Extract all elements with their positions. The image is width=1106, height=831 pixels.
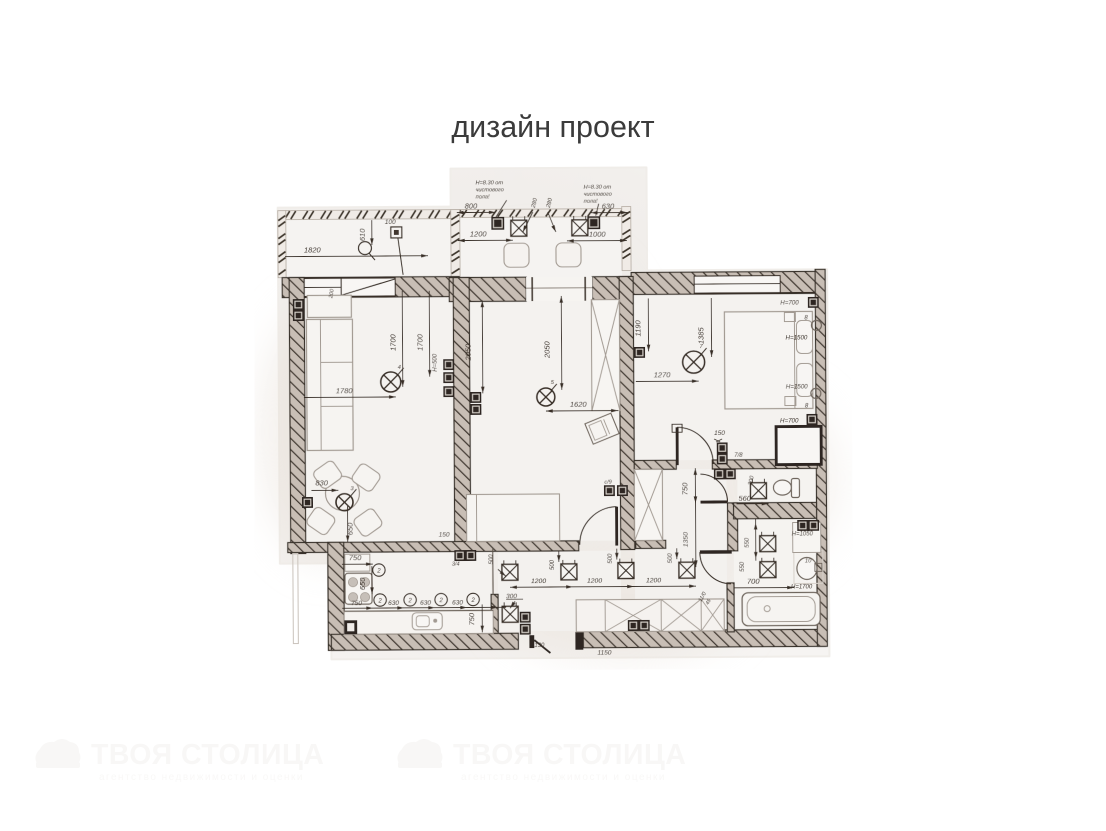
svg-text:2: 2	[438, 598, 443, 604]
svg-text:чистового: чистового	[584, 192, 612, 198]
svg-text:H=1050: H=1050	[792, 531, 814, 537]
svg-text:2050: 2050	[464, 343, 473, 362]
svg-text:550: 550	[745, 537, 751, 548]
svg-text:H=1700: H=1700	[791, 584, 813, 590]
svg-text:550: 550	[740, 561, 746, 572]
svg-text:4: 4	[398, 365, 401, 371]
svg-text:H=700: H=700	[780, 299, 799, 306]
svg-text:H=8.30 от: H=8.30 от	[476, 180, 504, 186]
svg-text:500: 500	[608, 553, 614, 564]
svg-text:630: 630	[420, 600, 431, 607]
svg-text:750: 750	[680, 482, 689, 495]
svg-text:1270: 1270	[654, 370, 672, 379]
svg-text:830: 830	[315, 478, 328, 487]
svg-text:750: 750	[349, 553, 362, 562]
svg-text:ТВОЯ СТОЛИЦА: ТВОЯ СТОЛИЦА	[453, 739, 686, 771]
svg-text:1820: 1820	[304, 245, 322, 254]
svg-text:100: 100	[385, 219, 396, 226]
svg-text:630: 630	[602, 202, 615, 211]
svg-text:700: 700	[747, 577, 760, 586]
svg-text:пола!: пола!	[476, 194, 490, 200]
svg-text:500: 500	[489, 554, 495, 565]
svg-text:150: 150	[714, 430, 725, 437]
svg-text:130: 130	[534, 643, 545, 649]
svg-text:1385: 1385	[696, 327, 705, 345]
svg-text:2: 2	[470, 598, 475, 604]
svg-text:800: 800	[465, 201, 478, 210]
svg-text:500: 500	[550, 559, 556, 570]
svg-text:H=8.30 от: H=8.30 от	[584, 185, 612, 191]
svg-text:1200: 1200	[646, 577, 661, 584]
svg-text:650: 650	[358, 577, 367, 590]
svg-text:560: 560	[738, 494, 751, 503]
svg-text:ТВОЯ СТОЛИЦА: ТВОЯ СТОЛИЦА	[91, 739, 324, 771]
svg-text:150: 150	[439, 532, 450, 539]
svg-text:агентство недвижимости и оц: агентство недвижимости и оценки	[99, 772, 304, 783]
svg-text:1700: 1700	[388, 333, 397, 351]
svg-text:610: 610	[358, 228, 367, 241]
svg-text:1000: 1000	[589, 230, 607, 239]
svg-text:1190: 1190	[633, 319, 642, 336]
svg-text:630: 630	[388, 600, 399, 607]
svg-text:чистового: чистового	[476, 187, 504, 193]
svg-text:H=500: H=500	[433, 353, 439, 372]
svg-text:1700: 1700	[415, 333, 424, 351]
svg-text:2050: 2050	[543, 340, 552, 359]
svg-text:1620: 1620	[570, 400, 588, 409]
svg-text:с/9: с/9	[604, 480, 611, 486]
svg-text:750: 750	[467, 612, 476, 625]
svg-text:2: 2	[377, 599, 382, 605]
svg-text:1150: 1150	[597, 650, 611, 657]
svg-text:агентство недвижимости и оц: агентство недвижимости и оценки	[461, 772, 666, 783]
svg-text:1350: 1350	[683, 532, 690, 547]
svg-text:H=700: H=700	[780, 417, 799, 424]
svg-text:10: 10	[805, 558, 812, 564]
svg-text:H=1500: H=1500	[785, 334, 807, 341]
svg-text:дизайн проект: дизайн проект	[451, 110, 654, 144]
svg-text:630: 630	[452, 600, 463, 607]
svg-text:H=1500: H=1500	[786, 383, 808, 390]
svg-text:3/4: 3/4	[452, 562, 460, 568]
svg-text:7/8: 7/8	[734, 453, 743, 459]
svg-text:1780: 1780	[336, 386, 354, 395]
svg-text:2: 2	[407, 598, 412, 604]
svg-text:1200: 1200	[587, 578, 602, 585]
svg-text:650: 650	[346, 522, 355, 535]
svg-text:2: 2	[376, 569, 381, 575]
svg-text:750: 750	[351, 600, 362, 607]
svg-text:500: 500	[668, 553, 674, 564]
svg-text:1200: 1200	[531, 578, 546, 585]
svg-text:1200: 1200	[470, 229, 488, 238]
svg-text:пола!: пола!	[584, 199, 598, 205]
